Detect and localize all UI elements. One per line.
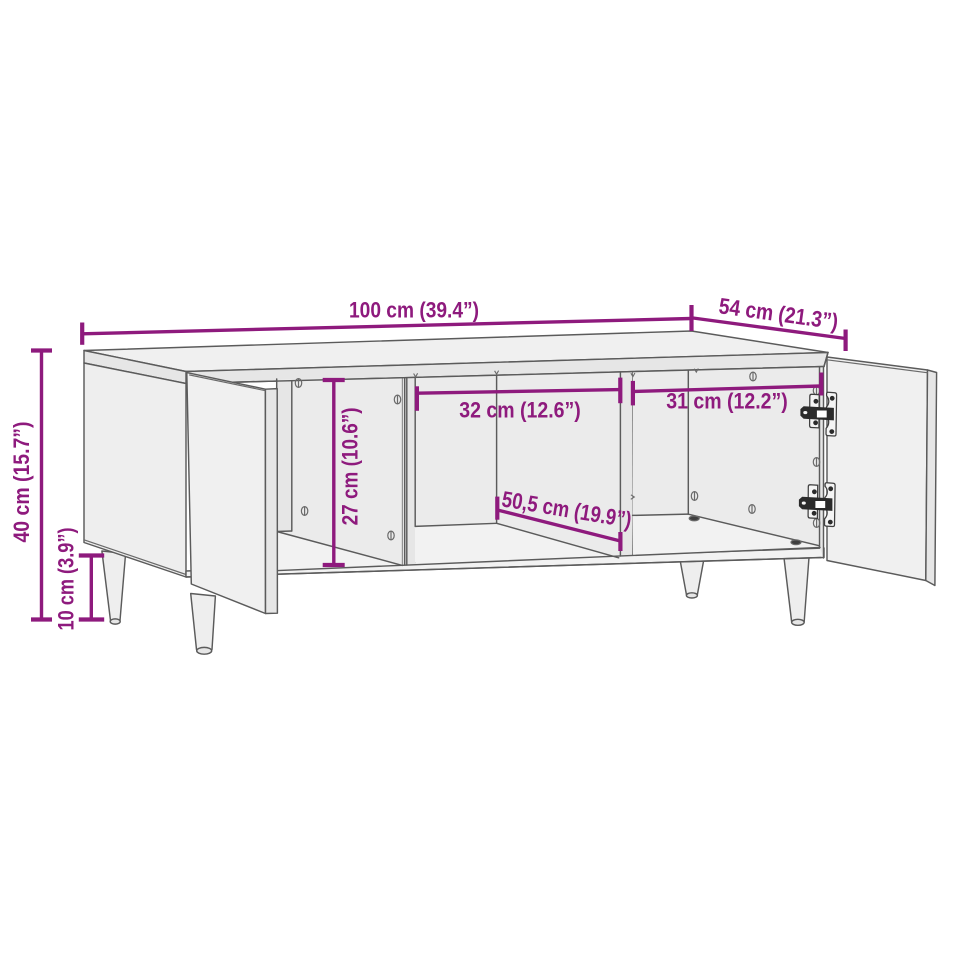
svg-text:100 cm (39.4”): 100 cm (39.4”) [349,298,479,323]
svg-text:32 cm (12.6”): 32 cm (12.6”) [459,398,581,423]
svg-text:31 cm (12.2”): 31 cm (12.2”) [666,389,788,414]
svg-text:27 cm (10.6”): 27 cm (10.6”) [338,407,363,525]
svg-text:40 cm (15.7”): 40 cm (15.7”) [9,422,34,543]
svg-text:10 cm (3.9”): 10 cm (3.9”) [54,528,79,631]
